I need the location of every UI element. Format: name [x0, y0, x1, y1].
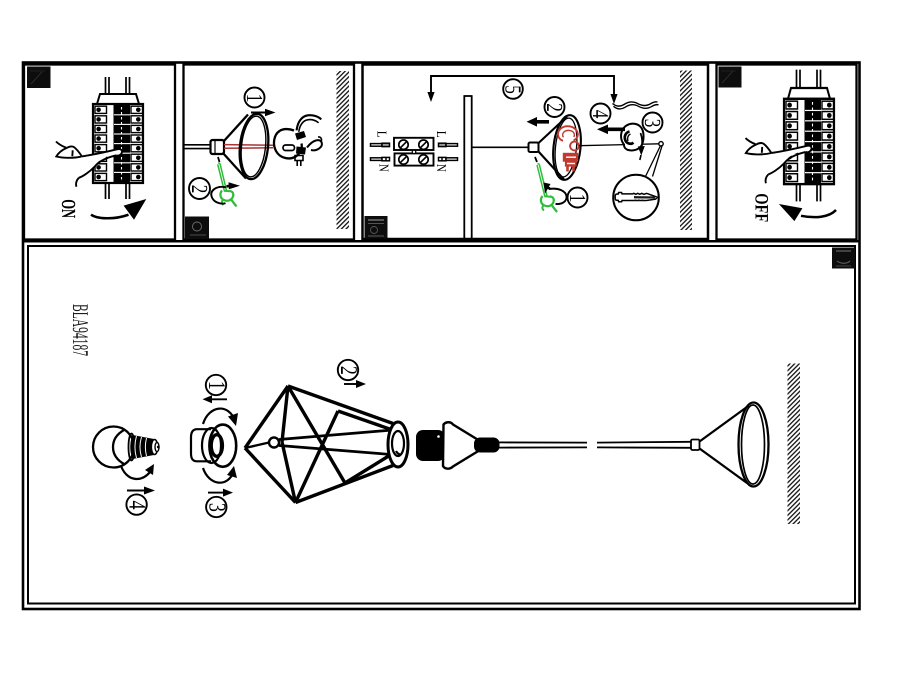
- svg-text:3: 3: [640, 119, 665, 128]
- svg-text:4: 4: [588, 110, 613, 119]
- svg-text:N: N: [376, 164, 391, 172]
- svg-text:1: 1: [203, 381, 229, 390]
- svg-text:4: 4: [124, 501, 150, 510]
- svg-text:3: 3: [203, 503, 229, 512]
- svg-text:5: 5: [501, 85, 526, 94]
- svg-text:2: 2: [335, 366, 361, 375]
- svg-text:N: N: [434, 164, 449, 172]
- svg-text:L: L: [434, 131, 449, 138]
- svg-text:1: 1: [565, 194, 590, 203]
- svg-text:2: 2: [542, 103, 567, 112]
- svg-text:OFF: OFF: [751, 193, 772, 222]
- svg-text:2: 2: [187, 185, 212, 194]
- svg-text:1: 1: [242, 94, 267, 103]
- svg-text:BLA94187: BLA94187: [68, 304, 93, 356]
- svg-text:ON: ON: [57, 199, 79, 218]
- svg-text:L: L: [374, 131, 389, 138]
